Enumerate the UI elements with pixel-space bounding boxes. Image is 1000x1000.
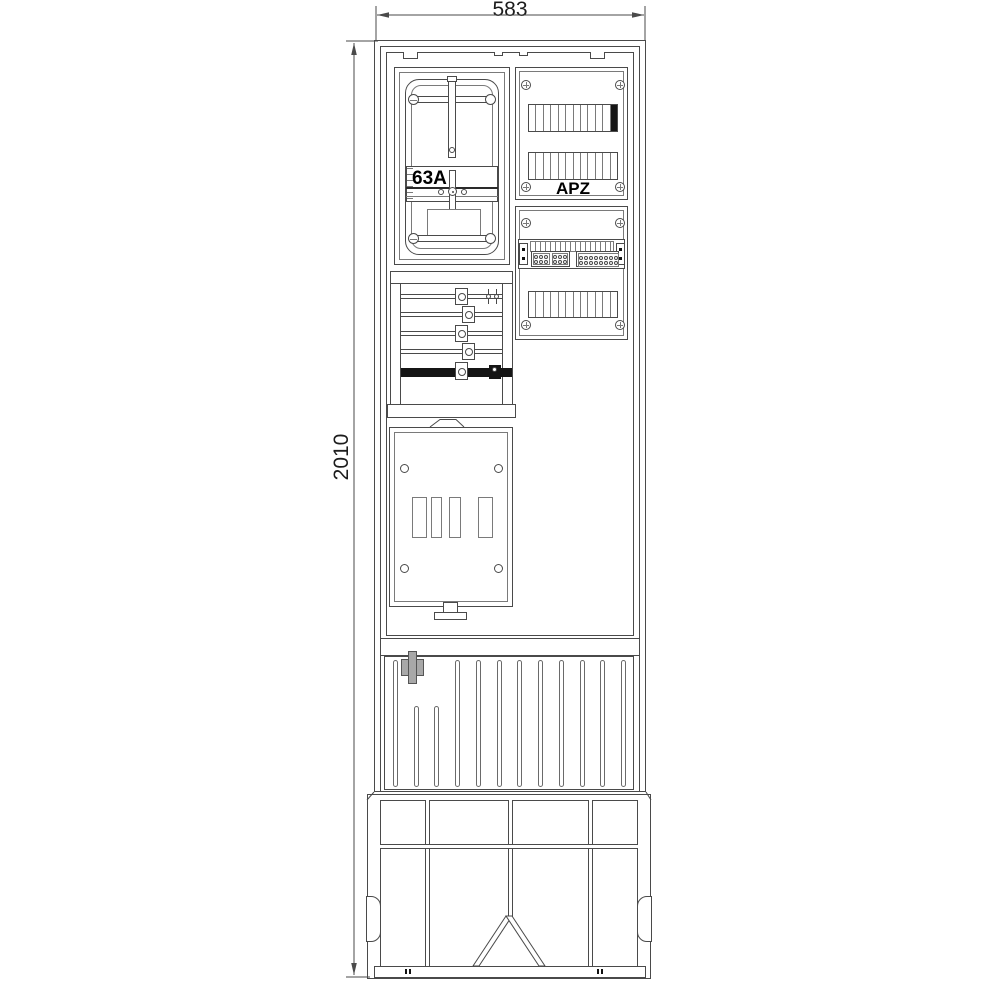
dimension-arrows xyxy=(351,12,644,975)
foundation-brace xyxy=(473,916,545,966)
arrow-icon xyxy=(351,963,357,975)
brace-leg xyxy=(506,916,545,966)
brace-leg xyxy=(473,916,512,966)
arrow-icon xyxy=(632,12,644,18)
dimension-lines xyxy=(346,6,651,977)
panel-top-bump xyxy=(430,420,464,428)
dimension-overlay xyxy=(0,0,1000,1000)
foundation-flare xyxy=(646,792,651,800)
technical-drawing-canvas: 583 2010 63A APZ xyxy=(0,0,1000,1000)
arrow-icon xyxy=(377,12,389,18)
foundation-flare xyxy=(367,792,374,800)
arrow-icon xyxy=(351,43,357,55)
